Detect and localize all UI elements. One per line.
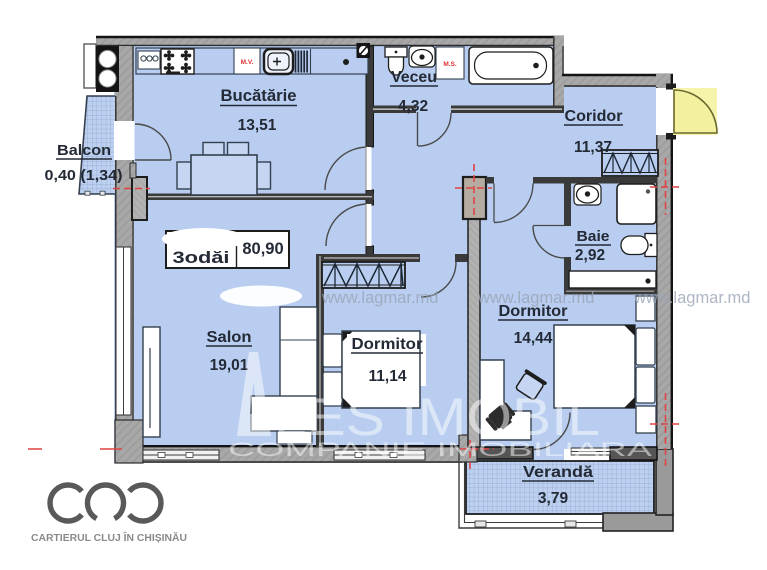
svg-text:3odăi: 3odăi [173, 249, 230, 267]
svg-text:Dormitor: Dormitor [352, 336, 423, 353]
svg-text:Veceu: Veceu [391, 69, 437, 86]
svg-text:0,40 (1,34): 0,40 (1,34) [45, 168, 123, 184]
svg-text:Baie: Baie [577, 228, 610, 245]
svg-text:4,32: 4,32 [398, 98, 428, 115]
svg-text:2,92: 2,92 [575, 247, 605, 264]
svg-text:www.lagmar.md: www.lagmar.md [477, 289, 594, 307]
svg-text:13,51: 13,51 [238, 117, 277, 134]
svg-text:3,79: 3,79 [538, 490, 569, 507]
svg-text:19,01: 19,01 [210, 357, 249, 374]
svg-text:M.S.: M.S. [443, 61, 457, 68]
svg-text:Verandă: Verandă [523, 464, 593, 481]
svg-text:80,90: 80,90 [242, 240, 283, 258]
svg-text:www.lagmar.md: www.lagmar.md [633, 289, 750, 307]
svg-text:Bucătărie: Bucătărie [221, 87, 297, 105]
svg-text:11,37: 11,37 [574, 139, 612, 156]
svg-text:Salon: Salon [207, 329, 252, 346]
svg-text:Coridor: Coridor [565, 108, 623, 125]
svg-text:11,14: 11,14 [369, 368, 407, 385]
svg-text:COMPANIE IMOBILIARA: COMPANIE IMOBILIARA [228, 439, 652, 461]
svg-text:Balcon: Balcon [57, 142, 111, 159]
svg-text:M.V.: M.V. [241, 59, 254, 66]
svg-text:www.lagmar.md: www.lagmar.md [321, 289, 438, 307]
svg-text:14,44: 14,44 [514, 330, 553, 347]
svg-text:CARTIERUL CLUJ ÎN CHIȘINĂU: CARTIERUL CLUJ ÎN CHIȘINĂU [31, 531, 187, 544]
